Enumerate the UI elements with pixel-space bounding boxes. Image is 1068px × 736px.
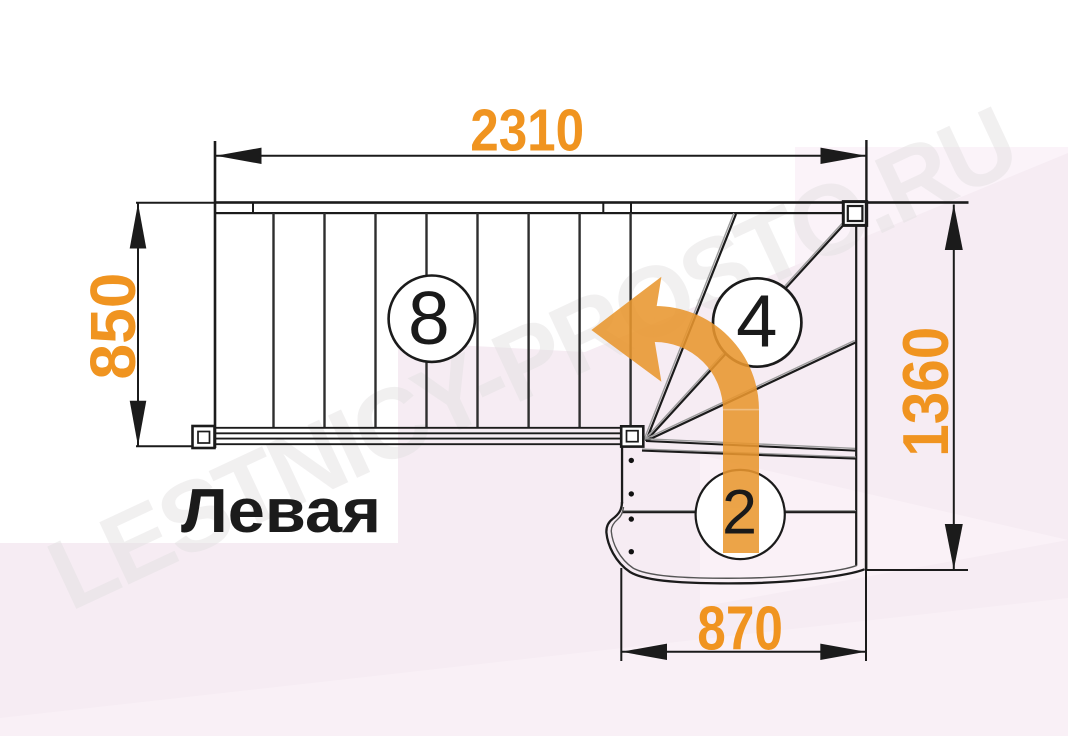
svg-text:Левая: Левая: [181, 476, 381, 546]
svg-text:4: 4: [736, 280, 777, 363]
svg-text:1360: 1360: [890, 327, 962, 457]
svg-text:8: 8: [408, 276, 450, 360]
svg-text:2310: 2310: [470, 97, 584, 164]
svg-text:2: 2: [722, 478, 757, 548]
svg-text:870: 870: [697, 594, 783, 664]
svg-text:850: 850: [77, 273, 149, 380]
